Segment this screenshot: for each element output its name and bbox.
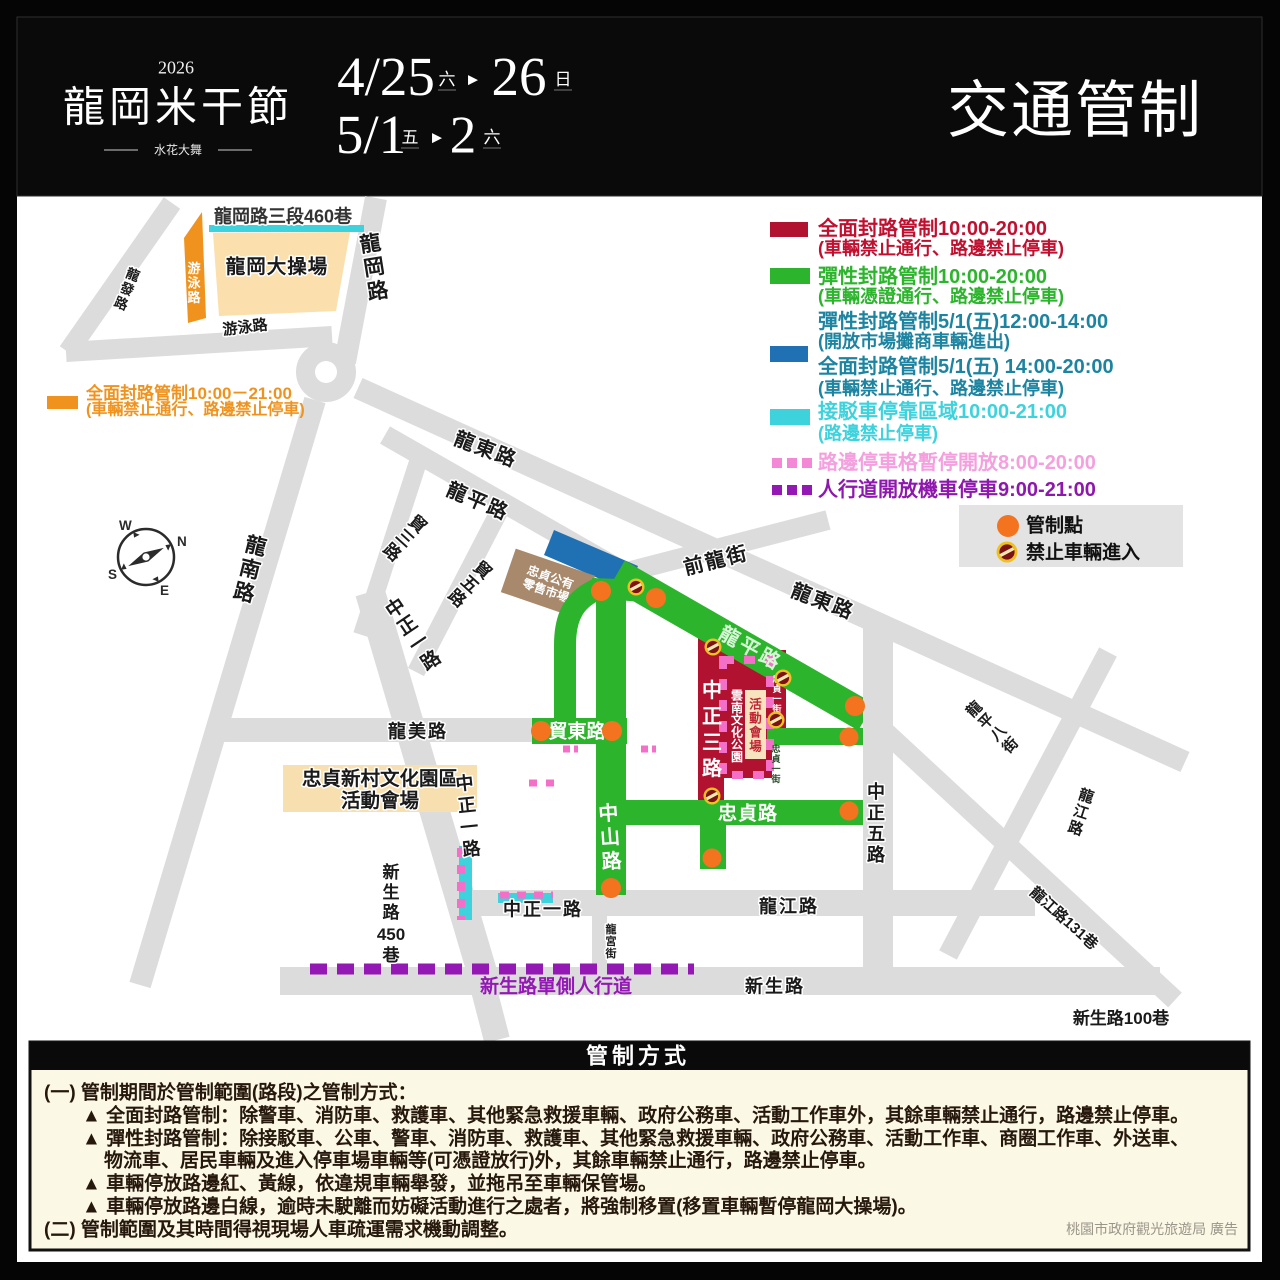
svg-text:龍岡路三段460巷: 龍岡路三段460巷 (214, 205, 353, 226)
svg-text:(開放市場攤商車輛進出): (開放市場攤商車輛進出) (818, 330, 1010, 351)
svg-text:龍江路: 龍江路 (759, 895, 819, 916)
svg-text:龍岡大操場: 龍岡大操場 (226, 255, 329, 278)
svg-text:忠貞路: 忠貞路 (718, 802, 778, 825)
svg-text:中正一路: 中正一路 (503, 898, 583, 919)
svg-text:(車輛禁止通行、路邊禁止停車): (車輛禁止通行、路邊禁止停車) (818, 377, 1064, 398)
svg-text:全面封路管制10:00－21:00: 全面封路管制10:00－21:00 (85, 383, 292, 403)
svg-text:彈性封路管制10:00-20:00: 彈性封路管制10:00-20:00 (818, 264, 1047, 288)
svg-text:S: S (108, 567, 117, 582)
svg-text:(路邊禁止停車): (路邊禁止停車) (818, 422, 938, 443)
svg-text:新生路: 新生路 (745, 975, 805, 996)
svg-text:2026: 2026 (158, 57, 194, 77)
svg-text:▲ 車輛停放路邊紅、黃線，依違規車輛舉發，並拖吊至車輛保管場: ▲ 車輛停放路邊紅、黃線，依違規車輛舉發，並拖吊至車輛保管場。 (82, 1172, 657, 1195)
svg-text:龍宮街: 龍宮街 (605, 922, 617, 960)
svg-text:物流車、居民車輛及進入停車場車輛等(可憑證放行)外，其餘車輛: 物流車、居民車輛及進入停車場車輛等(可憑證放行)外，其餘車輛禁止通行，路邊禁止停… (104, 1149, 877, 1172)
svg-text:交通管制: 交通管制 (947, 78, 1203, 146)
svg-text:全面封路管制10:00-20:00: 全面封路管制10:00-20:00 (817, 216, 1047, 240)
svg-text:▶: ▶ (468, 72, 478, 87)
svg-text:龍美路: 龍美路 (388, 720, 448, 741)
svg-text:雲南文化公園: 雲南文化公園 (731, 688, 744, 764)
svg-text:忠貞新村文化園區: 忠貞新村文化園區 (302, 767, 458, 790)
svg-text:人行道開放機車停車9:00-21:00: 人行道開放機車停車9:00-21:00 (818, 477, 1096, 501)
svg-text:游泳路: 游泳路 (187, 261, 201, 305)
svg-text:W: W (119, 518, 132, 533)
svg-text:全面封路管制5/1(五) 14:00-20:00: 全面封路管制5/1(五) 14:00-20:00 (817, 354, 1114, 378)
svg-text:彈性封路管制5/1(五)12:00-14:00: 彈性封路管制5/1(五)12:00-14:00 (818, 309, 1108, 333)
svg-text:(二) 管制範圍及其時間得視現場人車疏運需求機動調整。: (二) 管制範圍及其時間得視現場人車疏運需求機動調整。 (44, 1218, 518, 1241)
svg-text:5/1: 5/1 (336, 104, 406, 165)
svg-text:▲ 車輛停放路邊白線，逾時未駛離而妨礙活動進行之處者，將強制: ▲ 車輛停放路邊白線，逾時未駛離而妨礙活動進行之處者，將強制移置(移置車輛暫停龍… (82, 1195, 917, 1218)
svg-text:▲ 彈性封路管制：除接駁車、公車、警車、消防車、救護車、其他: ▲ 彈性封路管制：除接駁車、公車、警車、消防車、救護車、其他緊急救援車輛、政府公… (82, 1127, 1189, 1150)
svg-text:▲ 全面封路管制：除警車、消防車、救護車、其他緊急救援車輛、: ▲ 全面封路管制：除警車、消防車、救護車、其他緊急救援車輛、政府公務車、活動工作… (82, 1104, 1189, 1127)
svg-text:▶: ▶ (432, 130, 442, 145)
svg-text:(一) 管制期間於管制範圍(路段)之管制方式：: (一) 管制期間於管制範圍(路段)之管制方式： (44, 1081, 417, 1104)
svg-text:水花大舞: 水花大舞 (154, 142, 202, 157)
svg-text:桃園市政府觀光旅遊局 廣告: 桃園市政府觀光旅遊局 廣告 (1066, 1221, 1238, 1237)
svg-text:六: 六 (439, 70, 456, 89)
svg-text:活動會場: 活動會場 (341, 789, 420, 812)
svg-text:E: E (160, 583, 169, 598)
svg-text:路邊停車格暫停開放8:00-20:00: 路邊停車格暫停開放8:00-20:00 (818, 450, 1096, 474)
svg-text:2: 2 (450, 107, 477, 165)
svg-text:龍岡米干節: 龍岡米干節 (63, 86, 293, 132)
svg-text:(車輛禁止通行、路邊禁止停車): (車輛禁止通行、路邊禁止停車) (818, 237, 1064, 258)
svg-text:貿東路: 貿東路 (548, 720, 606, 743)
svg-text:新生路單側人行道: 新生路單側人行道 (480, 975, 632, 998)
svg-text:五: 五 (402, 128, 419, 147)
svg-text:(車輛憑證通行、路邊禁止停車): (車輛憑證通行、路邊禁止停車) (818, 285, 1064, 306)
svg-text:禁止車輛進入: 禁止車輛進入 (1026, 541, 1140, 564)
svg-text:新生路100巷: 新生路100巷 (1073, 1008, 1170, 1028)
svg-text:活動會場: 活動會場 (749, 696, 762, 753)
svg-text:日: 日 (555, 70, 572, 89)
svg-text:接駁車停靠區域10:00-21:00: 接駁車停靠區域10:00-21:00 (818, 399, 1067, 423)
svg-text:六: 六 (484, 128, 501, 147)
svg-text:忠貞一街: 忠貞一街 (770, 743, 780, 784)
svg-text:管制點: 管制點 (1026, 514, 1083, 537)
svg-text:26: 26 (492, 46, 547, 107)
svg-text:中正五路: 中正五路 (867, 781, 886, 865)
svg-text:管制方式: 管制方式 (586, 1044, 690, 1069)
svg-text:(車輛禁止通行、路邊禁止停車): (車輛禁止通行、路邊禁止停車) (86, 400, 305, 419)
svg-text:N: N (177, 534, 187, 549)
svg-text:4/25: 4/25 (337, 46, 435, 107)
